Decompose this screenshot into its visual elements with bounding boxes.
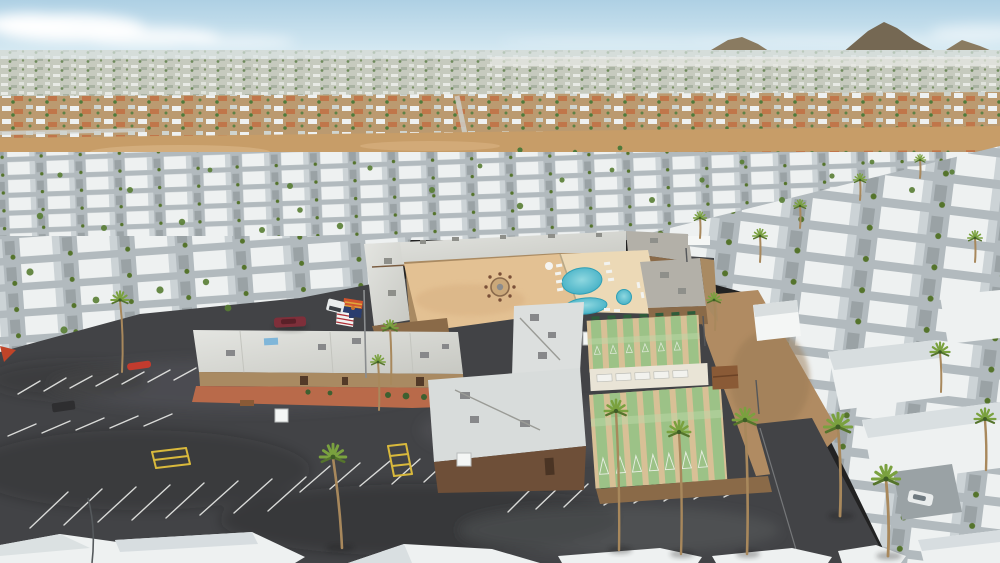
utility-box <box>457 453 471 466</box>
door <box>342 377 348 385</box>
door <box>416 377 424 386</box>
upper-court-bank <box>586 311 701 373</box>
wing-door <box>544 458 554 476</box>
large-home-roof <box>940 290 1000 344</box>
clubhouse-south-wall <box>199 372 464 388</box>
lower-court-bank <box>589 386 727 493</box>
utility-box <box>275 409 288 422</box>
east-building-roof <box>640 258 706 308</box>
bench <box>240 400 254 406</box>
door <box>300 376 308 385</box>
middle-wing-roof <box>512 302 584 376</box>
scene-canvas: % <box>0 0 1000 563</box>
roof-skylight <box>264 338 278 346</box>
distant-city <box>0 50 1000 98</box>
carport-roof <box>893 464 962 520</box>
patio-umbrella <box>545 262 553 270</box>
roof-ac-unit <box>660 272 669 278</box>
roof-ac-unit <box>678 288 686 294</box>
round-spa <box>617 290 632 305</box>
aerial-photo-mobile-home-park: % <box>0 0 1000 563</box>
gazebo <box>711 365 738 389</box>
small-white-shed <box>688 236 710 245</box>
maroon-car-roof <box>281 319 296 325</box>
